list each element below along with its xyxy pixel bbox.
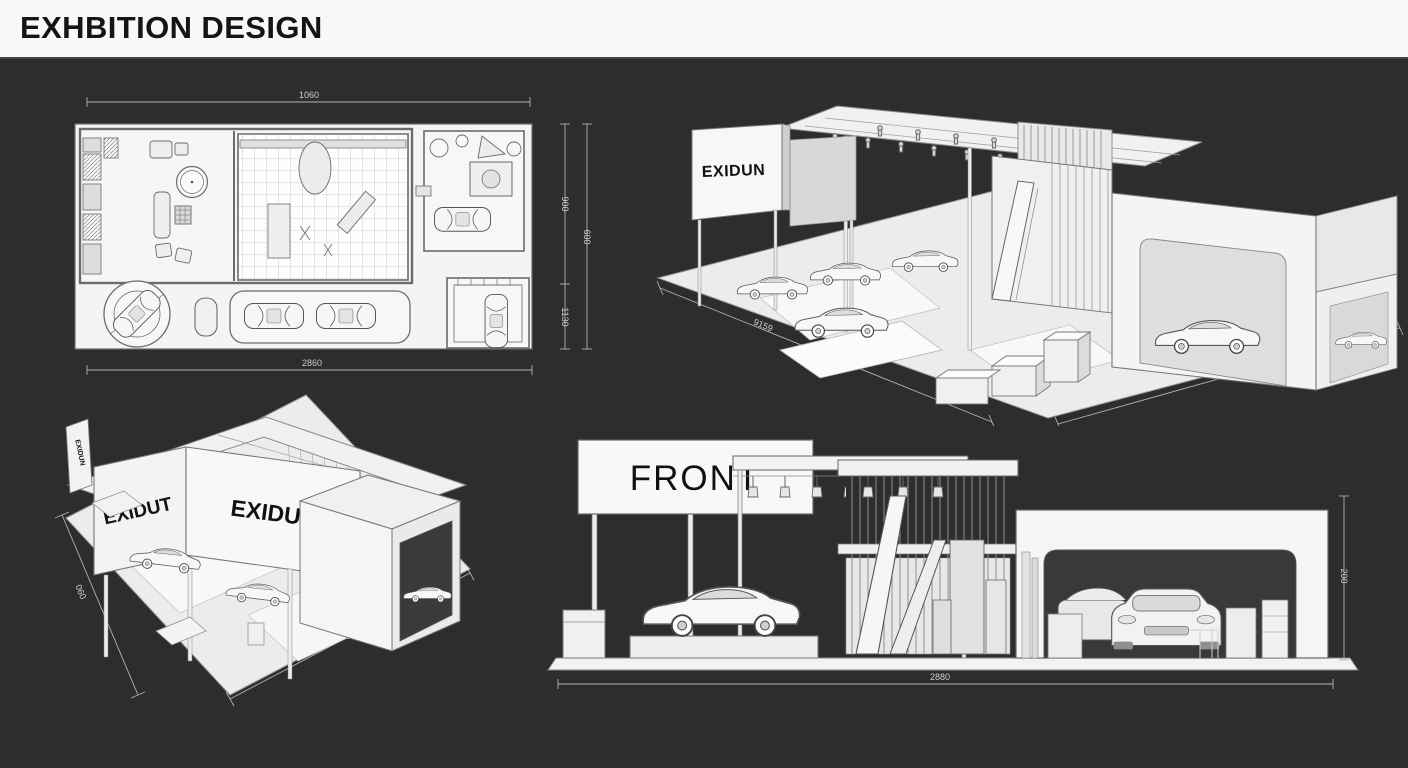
plan-sofa bbox=[154, 192, 170, 238]
plan-dim-bottom-label: 2860 bbox=[302, 358, 322, 368]
plan-turntable bbox=[104, 281, 170, 347]
iso-top-portal bbox=[1112, 193, 1397, 390]
front-middle-structure bbox=[838, 460, 1018, 654]
floor-plan-drawing: 1060 2860 900 1130 600 bbox=[62, 86, 607, 392]
iso-top-logo: EXIDUN bbox=[702, 162, 766, 181]
front-left-car bbox=[630, 587, 818, 658]
front-elevation-drawing: 2880 200 FRONT bbox=[538, 418, 1370, 710]
isometric-view-bottom: 060 0850 EXIDUN bbox=[38, 393, 493, 713]
iso-top-dim-left-label: 9159 bbox=[752, 317, 774, 334]
plan-dim-right-inner-top-label: 900 bbox=[560, 196, 570, 211]
front-dimension-right: 200 bbox=[1339, 496, 1349, 660]
front-ground bbox=[548, 658, 1358, 670]
front-signboard: FRONT bbox=[578, 440, 813, 514]
plan-car-platform bbox=[230, 291, 410, 343]
plan-dim-right-inner-bottom-label: 1130 bbox=[560, 307, 570, 326]
plan-dimension-bottom: 2860 bbox=[87, 358, 532, 375]
plan-room-top-right bbox=[416, 131, 524, 251]
front-dimension-bottom: 2880 bbox=[558, 672, 1333, 689]
exhibition-design-board: EXHBITION DESIGN 1060 2860 900 1130 bbox=[0, 0, 1408, 768]
front-left-box bbox=[563, 610, 605, 658]
front-dim-right-label: 200 bbox=[1339, 568, 1349, 583]
plan-dimension-right-outer: 600 bbox=[582, 124, 592, 349]
front-portal bbox=[1016, 510, 1328, 658]
page-title: EXHBITION DESIGN bbox=[0, 0, 1408, 43]
isometric-view-top: 9159 700 bbox=[640, 78, 1408, 426]
iso-bottom-dim-left-label: 060 bbox=[73, 583, 88, 601]
plan-body bbox=[75, 124, 532, 349]
iso-bottom-right-room bbox=[300, 475, 460, 651]
front-dim-bottom-label: 2880 bbox=[930, 672, 950, 682]
plan-room-bottom-right bbox=[447, 278, 529, 348]
header-bar: EXHBITION DESIGN bbox=[0, 0, 1408, 59]
iso-bottom-side-sign: EXIDUN bbox=[66, 419, 92, 493]
plan-dimension-right-inner: 900 1130 bbox=[560, 124, 570, 349]
plan-dim-right-outer-label: 600 bbox=[582, 229, 592, 244]
plan-dimension-top: 1060 bbox=[87, 90, 530, 107]
plan-dim-top-label: 1060 bbox=[299, 90, 319, 100]
